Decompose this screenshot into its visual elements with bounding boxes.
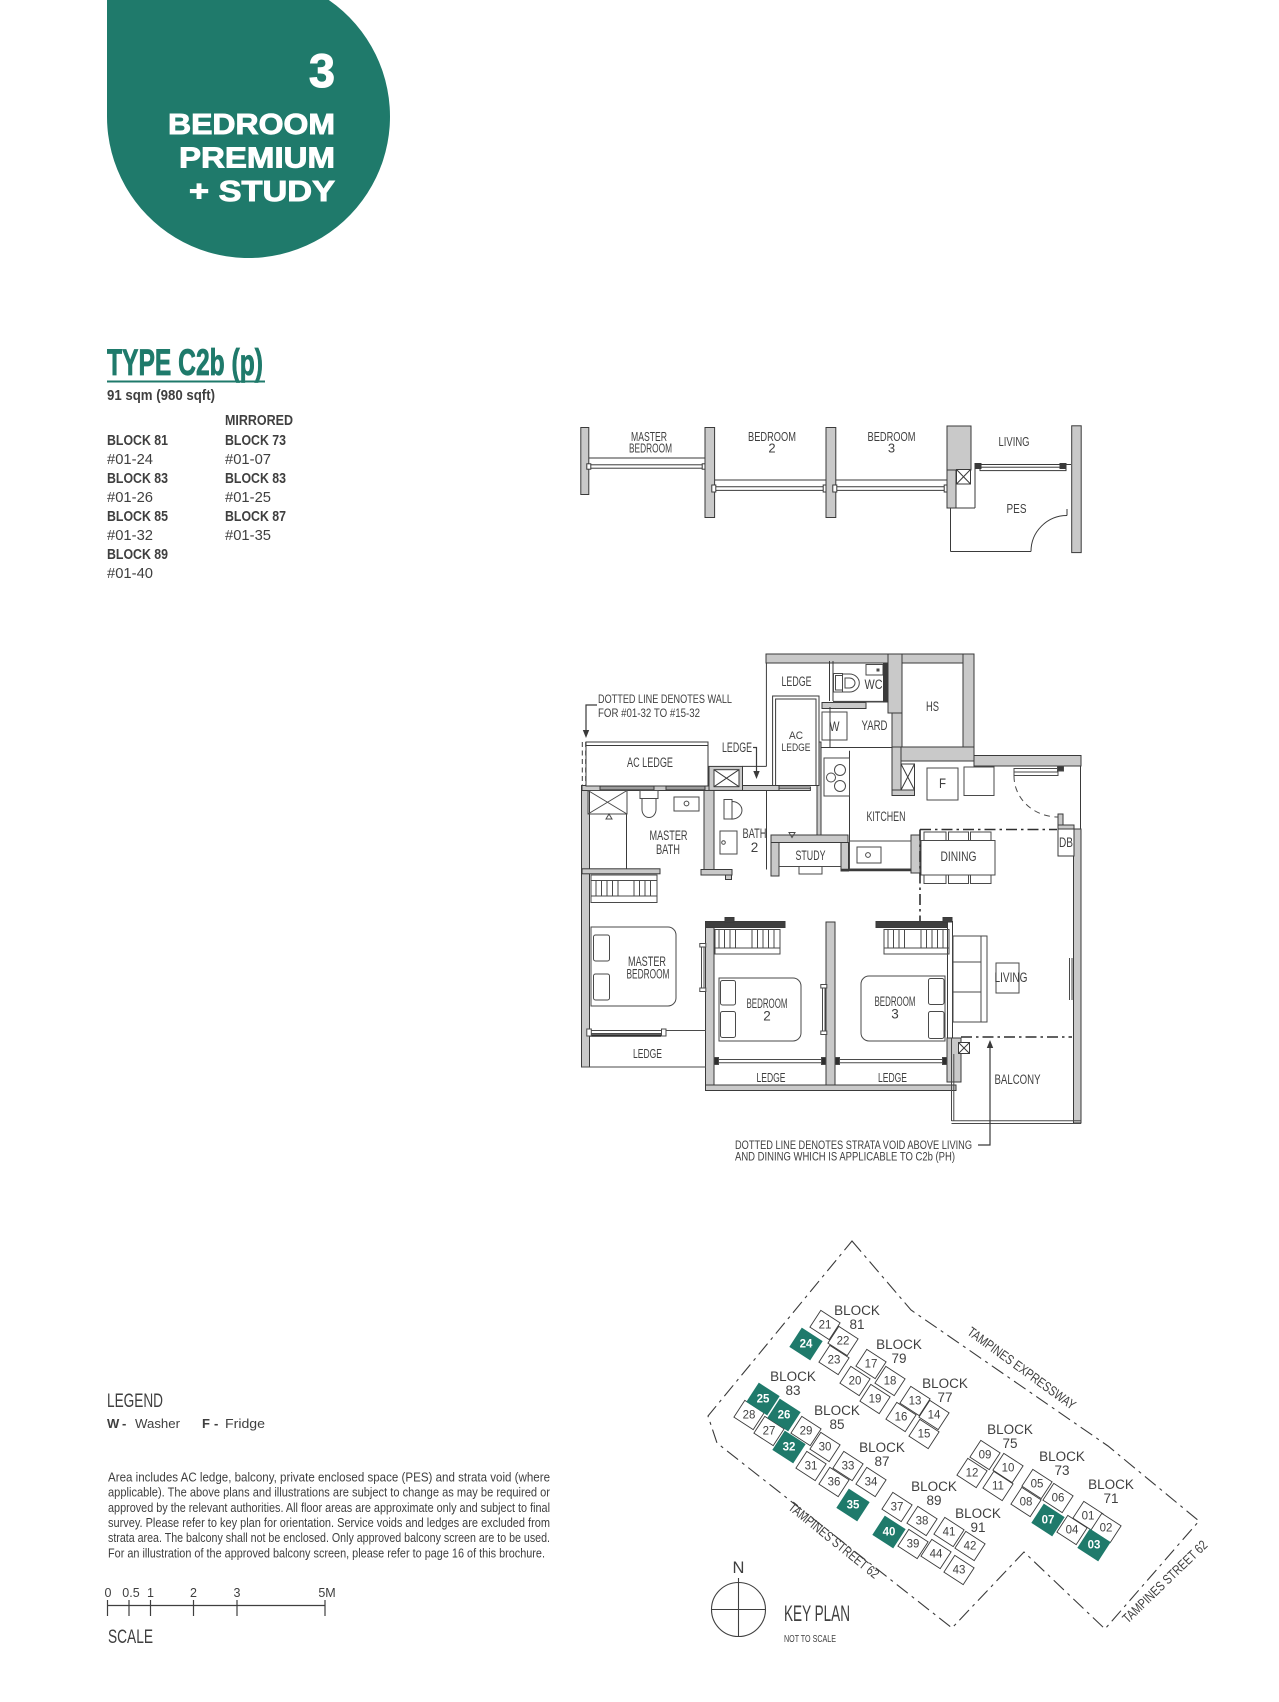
- svg-text:AC LEDGE: AC LEDGE: [627, 755, 673, 770]
- svg-text:MASTER: MASTER: [650, 828, 688, 843]
- svg-text:18: 18: [884, 1376, 897, 1388]
- svg-text:2: 2: [763, 1009, 771, 1024]
- svg-text:2: 2: [751, 840, 759, 855]
- svg-text:DINING: DINING: [941, 849, 977, 864]
- svg-text:-: -: [214, 1416, 218, 1431]
- svg-text:#01-07: #01-07: [225, 452, 271, 468]
- svg-text:+ STUDY: + STUDY: [189, 176, 335, 208]
- svg-text:#01-24: #01-24: [107, 452, 153, 468]
- svg-text:43: 43: [953, 1565, 966, 1577]
- svg-text:07: 07: [1042, 1515, 1055, 1527]
- svg-text:19: 19: [869, 1394, 882, 1406]
- svg-text:W: W: [107, 1416, 120, 1431]
- svg-text:36: 36: [828, 1477, 841, 1489]
- svg-text:91: 91: [970, 1520, 985, 1535]
- svg-text:applicable). The above plans a: applicable). The above plans and illustr…: [108, 1485, 551, 1500]
- svg-text:11: 11: [992, 1481, 1004, 1493]
- svg-text:BLOCK: BLOCK: [770, 1369, 816, 1384]
- svg-text:BLOCK: BLOCK: [1039, 1449, 1085, 1464]
- svg-text:SCALE: SCALE: [108, 1627, 153, 1648]
- svg-text:LEDGE: LEDGE: [782, 674, 812, 689]
- svg-text:BEDROOM: BEDROOM: [168, 109, 335, 141]
- svg-text:77: 77: [937, 1390, 952, 1405]
- svg-text:75: 75: [1002, 1436, 1017, 1451]
- svg-text:LIVING: LIVING: [995, 970, 1028, 985]
- svg-text:33: 33: [842, 1461, 855, 1473]
- svg-text:BEDROOM: BEDROOM: [627, 967, 670, 982]
- svg-text:-: -: [122, 1416, 126, 1431]
- svg-text:26: 26: [778, 1410, 791, 1422]
- svg-text:KEY PLAN: KEY PLAN: [784, 1601, 850, 1626]
- svg-text:22: 22: [837, 1336, 850, 1348]
- svg-text:38: 38: [916, 1516, 929, 1528]
- svg-text:Fridge: Fridge: [225, 1416, 265, 1431]
- svg-text:06: 06: [1052, 1493, 1065, 1505]
- svg-text:05: 05: [1031, 1479, 1044, 1491]
- svg-text:Area includes AC ledge, balcon: Area includes AC ledge, balcony, private…: [108, 1470, 550, 1485]
- svg-text:21: 21: [819, 1320, 832, 1332]
- svg-text:BLOCK 73: BLOCK 73: [225, 433, 286, 449]
- svg-text:29: 29: [800, 1426, 813, 1438]
- svg-text:08: 08: [1020, 1497, 1033, 1509]
- svg-text:LIVING: LIVING: [999, 434, 1030, 449]
- svg-text:30: 30: [819, 1442, 832, 1454]
- svg-text:04: 04: [1066, 1525, 1079, 1537]
- svg-text:09: 09: [979, 1450, 992, 1462]
- svg-text:1: 1: [147, 1586, 154, 1600]
- svg-text:13: 13: [909, 1396, 922, 1408]
- svg-text:PES: PES: [1007, 501, 1027, 516]
- svg-text:LEDGE: LEDGE: [757, 1071, 786, 1085]
- svg-text:LEGEND: LEGEND: [107, 1391, 163, 1412]
- svg-text:HS: HS: [926, 699, 939, 714]
- svg-text:5M: 5M: [318, 1586, 335, 1600]
- svg-text:BLOCK: BLOCK: [955, 1506, 1001, 1521]
- svg-text:0: 0: [105, 1586, 112, 1600]
- svg-text:For an illustration of the app: For an illustration of the approved balc…: [108, 1545, 545, 1560]
- svg-text:42: 42: [964, 1541, 977, 1553]
- svg-text:BATH: BATH: [743, 826, 767, 841]
- svg-text:BLOCK 83: BLOCK 83: [225, 471, 286, 487]
- svg-text:20: 20: [849, 1376, 862, 1388]
- svg-text:BLOCK: BLOCK: [859, 1440, 905, 1455]
- svg-text:FOR #01-32 TO #15-32: FOR #01-32 TO #15-32: [598, 706, 700, 720]
- svg-text:F: F: [939, 776, 946, 791]
- svg-text:BLOCK: BLOCK: [814, 1403, 860, 1418]
- svg-text:LEDGE: LEDGE: [782, 742, 811, 754]
- svg-text:MIRRORED: MIRRORED: [225, 413, 293, 429]
- svg-text:89: 89: [926, 1493, 941, 1508]
- svg-text:35: 35: [847, 1500, 860, 1512]
- svg-text:TYPE C2b (p): TYPE C2b (p): [107, 342, 263, 383]
- svg-text:STUDY: STUDY: [796, 848, 826, 863]
- svg-text:#01-26: #01-26: [107, 490, 153, 506]
- svg-text:WC: WC: [865, 677, 883, 692]
- svg-text:25: 25: [757, 1394, 770, 1406]
- svg-text:TAMPINES STREET 62: TAMPINES STREET 62: [786, 1499, 882, 1581]
- svg-text:32: 32: [783, 1442, 796, 1454]
- svg-text:BALCONY: BALCONY: [995, 1072, 1041, 1087]
- svg-text:BLOCK 83: BLOCK 83: [107, 471, 168, 487]
- svg-text:BLOCK: BLOCK: [834, 1303, 880, 1318]
- svg-text:71: 71: [1103, 1491, 1118, 1506]
- svg-text:2: 2: [768, 441, 775, 456]
- svg-text:BLOCK: BLOCK: [911, 1479, 957, 1494]
- svg-text:#01-25: #01-25: [225, 490, 271, 506]
- svg-text:BLOCK 85: BLOCK 85: [107, 509, 168, 525]
- svg-text:73: 73: [1054, 1463, 1069, 1478]
- svg-text:01: 01: [1082, 1511, 1095, 1523]
- svg-text:BLOCK 81: BLOCK 81: [107, 433, 168, 449]
- svg-text:TAMPINES EXPRESSWAY: TAMPINES EXPRESSWAY: [965, 1324, 1079, 1413]
- svg-text:N: N: [733, 1559, 745, 1577]
- svg-text:#01-32: #01-32: [107, 528, 153, 544]
- svg-text:Washer: Washer: [135, 1416, 181, 1431]
- svg-text:YARD: YARD: [862, 718, 888, 733]
- svg-text:0.5: 0.5: [122, 1586, 139, 1600]
- svg-text:3: 3: [234, 1586, 241, 1600]
- svg-text:LEDGE: LEDGE: [722, 740, 752, 755]
- svg-text:39: 39: [907, 1539, 920, 1551]
- svg-text:2: 2: [190, 1586, 197, 1600]
- svg-text:KITCHEN: KITCHEN: [867, 809, 906, 824]
- svg-text:LEDGE: LEDGE: [878, 1071, 907, 1085]
- svg-text:BLOCK: BLOCK: [987, 1422, 1033, 1437]
- svg-text:17: 17: [865, 1359, 878, 1371]
- svg-text:15: 15: [918, 1429, 931, 1441]
- svg-text:NOT TO SCALE: NOT TO SCALE: [784, 1633, 836, 1645]
- svg-text:44: 44: [930, 1549, 943, 1561]
- svg-text:41: 41: [943, 1527, 956, 1539]
- svg-text:AC: AC: [789, 730, 803, 742]
- svg-text:BEDROOM: BEDROOM: [629, 441, 672, 456]
- svg-text:87: 87: [874, 1454, 889, 1469]
- svg-text:AND DINING WHICH IS APPLICABLE: AND DINING WHICH IS APPLICABLE TO C2b (P…: [735, 1150, 955, 1164]
- svg-text:TAMPINES STREET 62: TAMPINES STREET 62: [1119, 1537, 1210, 1626]
- svg-text:LEDGE: LEDGE: [633, 1047, 662, 1061]
- svg-text:DOTTED LINE DENOTES WALL: DOTTED LINE DENOTES WALL: [598, 692, 732, 706]
- svg-text:24: 24: [800, 1339, 813, 1351]
- svg-text:16: 16: [895, 1412, 908, 1424]
- svg-text:BLOCK: BLOCK: [922, 1376, 968, 1391]
- svg-text:12: 12: [966, 1468, 979, 1480]
- svg-text:#01-35: #01-35: [225, 528, 271, 544]
- svg-text:28: 28: [743, 1410, 756, 1422]
- svg-text:BLOCK 87: BLOCK 87: [225, 509, 286, 525]
- svg-text:PREMIUM: PREMIUM: [179, 143, 335, 175]
- svg-text:W: W: [830, 719, 840, 734]
- svg-text:02: 02: [1100, 1523, 1113, 1535]
- svg-text:BLOCK 89: BLOCK 89: [107, 547, 168, 563]
- svg-text:BLOCK: BLOCK: [1088, 1477, 1134, 1492]
- svg-text:85: 85: [829, 1417, 844, 1432]
- svg-text:3: 3: [309, 44, 335, 97]
- svg-text:strata area. The balcony shall: strata area. The balcony shall not be en…: [108, 1530, 550, 1545]
- svg-text:10: 10: [1002, 1463, 1015, 1475]
- svg-text:BATH: BATH: [656, 842, 680, 857]
- svg-text:14: 14: [928, 1410, 941, 1422]
- svg-text:DB: DB: [1059, 835, 1073, 850]
- svg-text:survey. Please refer to key pl: survey. Please refer to key plan for ori…: [108, 1515, 550, 1530]
- svg-text:79: 79: [891, 1351, 906, 1366]
- svg-text:27: 27: [763, 1426, 776, 1438]
- svg-text:37: 37: [891, 1502, 904, 1514]
- svg-text:34: 34: [865, 1477, 878, 1489]
- svg-text:83: 83: [785, 1383, 800, 1398]
- svg-text:31: 31: [805, 1461, 818, 1473]
- svg-text:approved by the relevant autho: approved by the relevant authorities. Al…: [108, 1500, 550, 1515]
- svg-text:23: 23: [828, 1355, 841, 1367]
- svg-text:3: 3: [888, 441, 895, 456]
- svg-text:81: 81: [849, 1317, 864, 1332]
- svg-text:F: F: [202, 1416, 210, 1431]
- svg-text:03: 03: [1088, 1540, 1101, 1552]
- svg-text:40: 40: [883, 1527, 896, 1539]
- svg-text:#01-40: #01-40: [107, 566, 153, 582]
- svg-text:BLOCK: BLOCK: [876, 1337, 922, 1352]
- svg-text:91 sqm (980 sqft): 91 sqm (980 sqft): [107, 387, 215, 404]
- svg-text:3: 3: [891, 1007, 899, 1022]
